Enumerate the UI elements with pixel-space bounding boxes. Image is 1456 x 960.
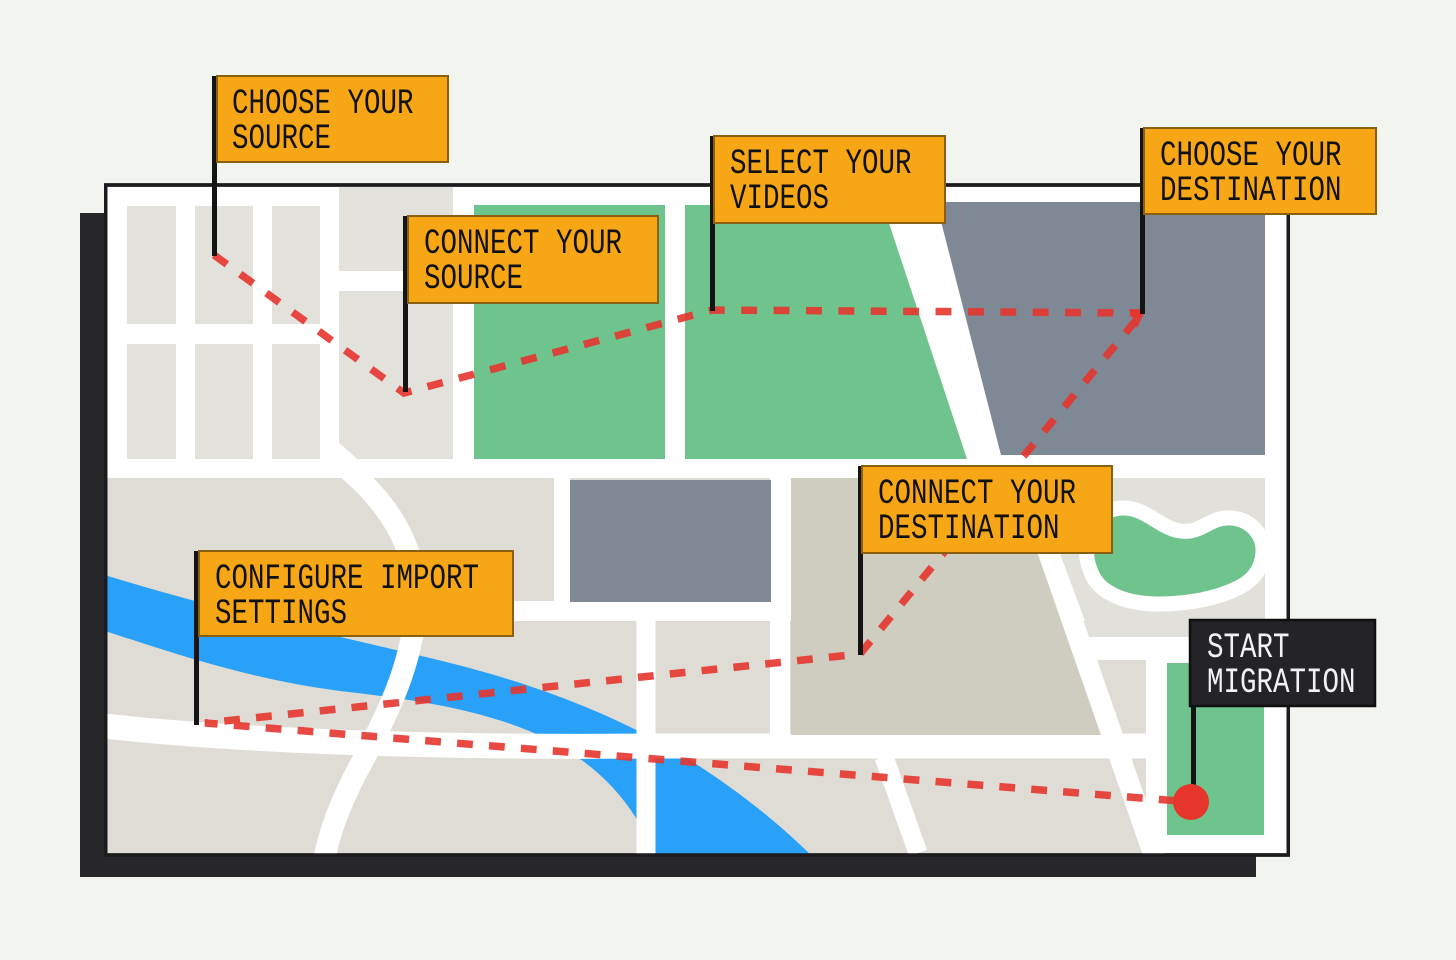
svg-text:SELECT YOUR: SELECT YOUR xyxy=(730,144,912,184)
svg-text:START: START xyxy=(1207,628,1290,668)
svg-text:DESTINATION: DESTINATION xyxy=(878,509,1060,549)
svg-text:DESTINATION: DESTINATION xyxy=(1160,171,1342,211)
svg-text:SOURCE: SOURCE xyxy=(232,119,331,159)
svg-text:SETTINGS: SETTINGS xyxy=(215,594,347,634)
svg-text:CONFIGURE IMPORT: CONFIGURE IMPORT xyxy=(215,559,479,599)
svg-text:CHOOSE YOUR: CHOOSE YOUR xyxy=(232,84,414,124)
svg-text:VIDEOS: VIDEOS xyxy=(730,179,829,219)
svg-text:CHOOSE YOUR: CHOOSE YOUR xyxy=(1160,136,1342,176)
svg-text:SOURCE: SOURCE xyxy=(424,259,523,299)
svg-text:CONNECT YOUR: CONNECT YOUR xyxy=(424,224,622,264)
svg-text:MIGRATION: MIGRATION xyxy=(1207,663,1356,703)
svg-text:CONNECT YOUR: CONNECT YOUR xyxy=(878,474,1076,514)
